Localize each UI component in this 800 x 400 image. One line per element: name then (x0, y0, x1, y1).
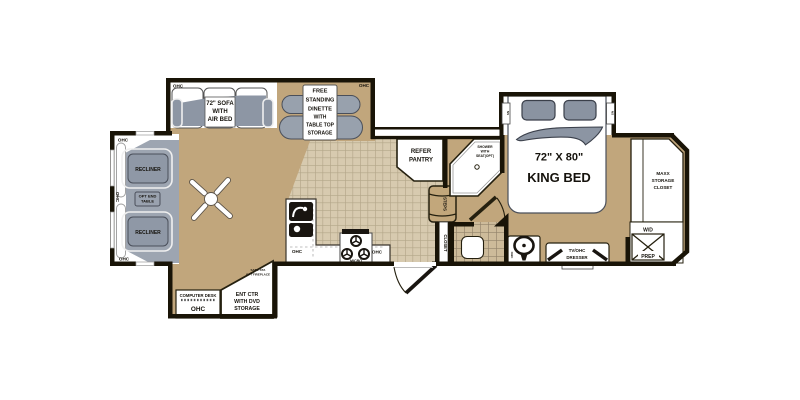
svg-text:OHC: OHC (119, 257, 130, 262)
svg-text:OHC: OHC (173, 84, 184, 89)
svg-text:OHC: OHC (292, 249, 303, 254)
svg-text:CLOSET: CLOSET (443, 235, 448, 252)
svg-text:OHC: OHC (510, 252, 514, 260)
svg-text:OHC: OHC (372, 250, 383, 255)
svg-text:TABLE: TABLE (141, 199, 154, 204)
svg-text:W/D: W/D (643, 228, 653, 234)
svg-text:DINETTE: DINETTE (308, 107, 332, 113)
svg-text:72" SOFA: 72" SOFA (206, 101, 234, 107)
svg-text:DRESSER: DRESSER (566, 255, 588, 260)
svg-text:ENT CTR: ENT CTR (236, 292, 259, 298)
svg-text:FREE: FREE (313, 89, 328, 95)
svg-text:STEPS: STEPS (443, 197, 448, 211)
svg-text:SAT'L STA: SAT'L STA (251, 268, 267, 272)
svg-text:OHC: OHC (191, 306, 206, 313)
svg-text:KING BED: KING BED (527, 170, 591, 185)
svg-text:WITH: WITH (212, 109, 227, 115)
svg-text:PANTRY: PANTRY (409, 158, 433, 164)
svg-text:STANDING: STANDING (306, 98, 335, 104)
svg-text:WITH: WITH (314, 115, 327, 121)
svg-text:CLOSET: CLOSET (654, 185, 673, 190)
svg-text:STORAGE: STORAGE (234, 306, 260, 312)
svg-text:NS: NS (611, 111, 615, 115)
svg-text:RECLINER: RECLINER (135, 167, 161, 173)
svg-text:OHC: OHC (118, 138, 129, 143)
svg-text:72" X 80": 72" X 80" (535, 152, 583, 164)
svg-text:WITH: WITH (481, 150, 490, 154)
svg-text:TV/OHC: TV/OHC (569, 248, 586, 253)
svg-text:STORAGE: STORAGE (652, 178, 675, 183)
svg-text:RECLINER: RECLINER (135, 230, 161, 236)
svg-text:SHOWER: SHOWER (477, 145, 493, 149)
svg-text:WITH DVD: WITH DVD (234, 299, 260, 305)
svg-text:REFER: REFER (411, 149, 432, 155)
svg-text:OPT FIREPLACE: OPT FIREPLACE (246, 273, 270, 277)
svg-text:OHC: OHC (359, 83, 370, 88)
svg-text:AIR BED: AIR BED (208, 117, 233, 123)
svg-text:MAXX: MAXX (656, 171, 670, 176)
svg-text:NS: NS (506, 111, 510, 115)
svg-text:OHC: OHC (115, 192, 120, 203)
svg-text:TABLE TOP: TABLE TOP (306, 123, 335, 129)
svg-text:SEAT(OPT): SEAT(OPT) (476, 154, 494, 158)
svg-text:PREP: PREP (641, 254, 655, 260)
svg-text:COMPUTER DESK: COMPUTER DESK (180, 293, 217, 298)
svg-text:STORAGE: STORAGE (308, 131, 333, 137)
